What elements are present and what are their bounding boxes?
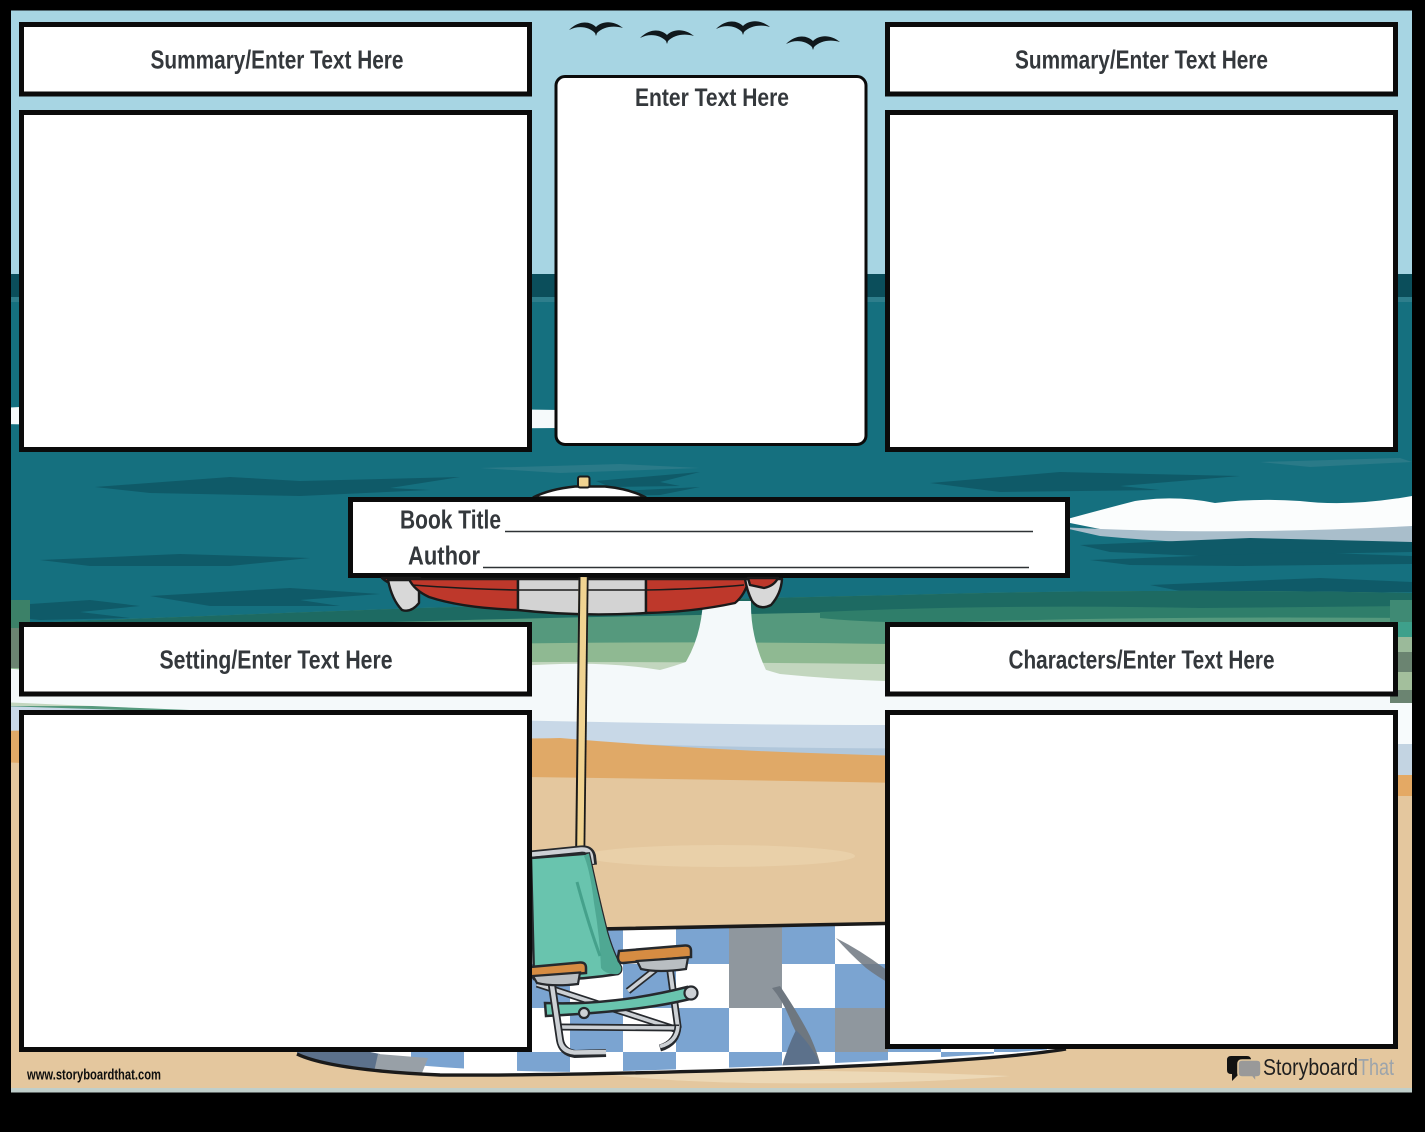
- svg-text:Enter Text Here: Enter Text Here: [635, 84, 789, 112]
- svg-text:Author: Author: [408, 543, 480, 571]
- svg-text:Book Title: Book Title: [400, 507, 501, 535]
- svg-text:Setting/Enter Text Here: Setting/Enter Text Here: [160, 645, 393, 675]
- svg-text:Characters/Enter Text Here: Characters/Enter Text Here: [1009, 645, 1275, 675]
- svg-text:www.storyboardthat.com: www.storyboardthat.com: [26, 1068, 161, 1084]
- svg-text:Summary/Enter Text Here: Summary/Enter Text Here: [151, 45, 404, 75]
- svg-text:Summary/Enter Text Here: Summary/Enter Text Here: [1015, 45, 1268, 75]
- svg-text:StoryboardThat: StoryboardThat: [1263, 1054, 1394, 1080]
